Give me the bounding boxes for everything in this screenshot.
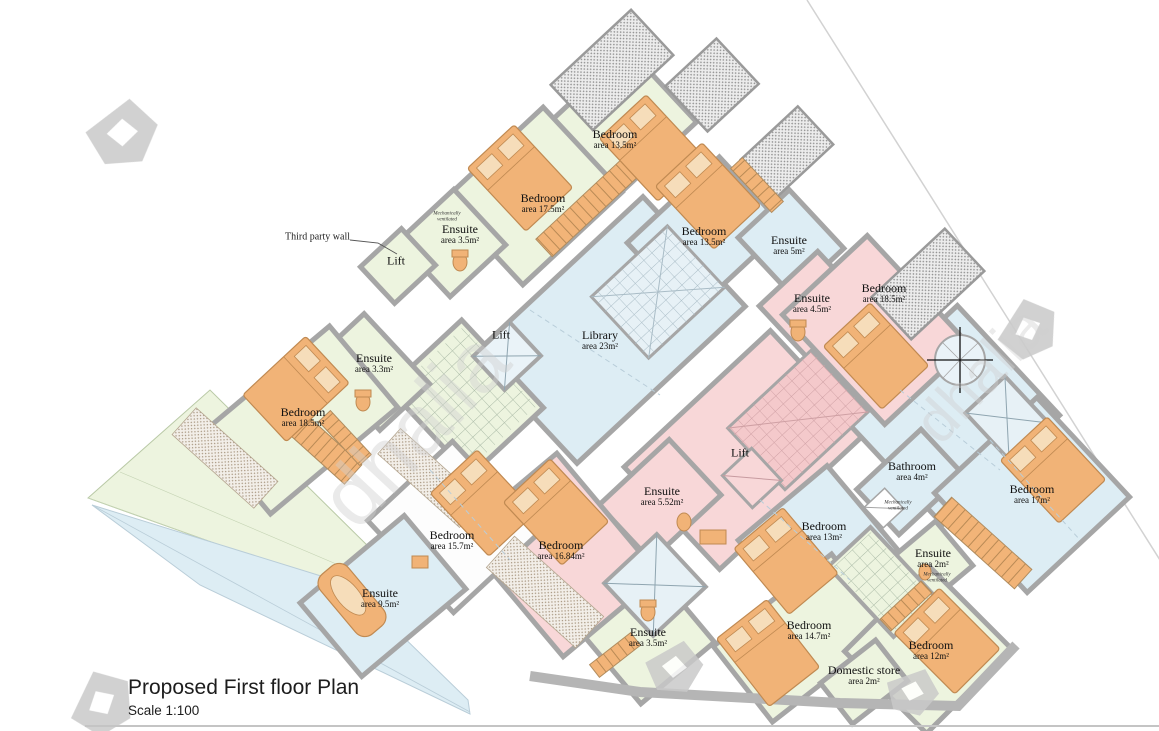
- room-label-bedroom-13: Bedroomarea 13m²: [802, 520, 847, 542]
- room-label-bedroom-16-84: Bedroomarea 16.84m²: [537, 539, 584, 561]
- room-label-bedroom-17-5: Bedroomarea 17.5m²: [521, 192, 566, 214]
- page-title: Proposed First floor Plan: [128, 676, 359, 700]
- mech-vent-note: Mechanically ventilated: [429, 211, 465, 223]
- room-label-bedroom-18-5-left: Bedroomarea 18.5m²: [281, 406, 326, 428]
- room-label-library: Libraryarea 23m²: [582, 329, 618, 351]
- room-label-bedroom-12: Bedroomarea 12m²: [909, 639, 954, 661]
- title-block: Proposed First floor Plan Scale 1:100: [128, 676, 359, 718]
- floor-plan-page: dhalia dhalia Bedroomarea 13.5m² Bedroom…: [0, 0, 1159, 731]
- scale-note: Scale 1:100: [128, 703, 359, 718]
- room-label-bedroom-13-5-mid: Bedroomarea 13.5m²: [682, 225, 727, 247]
- mech-vent-note: Mechanically ventilated: [919, 572, 955, 584]
- room-label-ensuite-3-3: Ensuitearea 3.3m²: [355, 352, 393, 374]
- room-label-bathroom-4: Bathroomarea 4m²: [888, 460, 936, 482]
- room-label-ensuite-3-5-bottom: Ensuitearea 3.5m²: [629, 626, 667, 648]
- third-party-wall-note: Third party wall: [285, 232, 350, 243]
- mech-vent-note: Mechanically ventilated: [880, 500, 916, 512]
- lift-label-pink: Lift: [731, 446, 749, 461]
- room-label-ensuite-5: Ensuitearea 5m²: [771, 234, 807, 256]
- room-label-ensuite-3-5-top: Ensuitearea 3.5m²: [441, 223, 479, 245]
- room-label-bedroom-13-5-top: Bedroomarea 13.5m²: [593, 128, 638, 150]
- room-label-bedroom-15-7: Bedroomarea 15.7m²: [430, 529, 475, 551]
- room-label-ensuite-9-5: Ensuitearea 9.5m²: [361, 587, 399, 609]
- room-label-ensuite-2: Ensuitearea 2m²: [915, 547, 951, 569]
- label-layer: Bedroomarea 13.5m² Bedroomarea 17.5m² En…: [0, 0, 1159, 731]
- lift-label-top: Lift: [387, 254, 405, 269]
- lift-label-center: Lift: [492, 328, 510, 343]
- room-label-bedroom-18-5-pink: Bedroomarea 18.5m²: [862, 282, 907, 304]
- room-label-bedroom-17: Bedroomarea 17m²: [1010, 483, 1055, 505]
- room-label-domestic-store: Domestic storearea 2m²: [825, 664, 903, 686]
- room-label-ensuite-4-5: Ensuitearea 4.5m²: [793, 292, 831, 314]
- room-label-bedroom-14-7: Bedroomarea 14.7m²: [787, 619, 832, 641]
- room-label-ensuite-5-52: Ensuitearea 5.52m²: [641, 485, 684, 507]
